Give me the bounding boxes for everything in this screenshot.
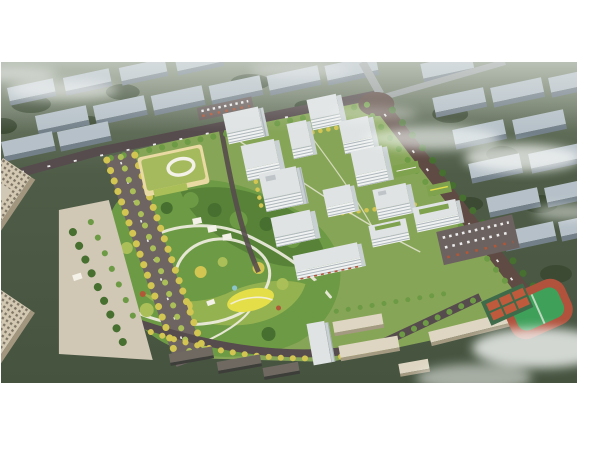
residential-tower (350, 144, 394, 187)
flower-bed (140, 291, 146, 297)
tree (218, 257, 228, 267)
cloud (251, 62, 351, 78)
tree (208, 203, 222, 217)
tree (140, 303, 154, 317)
tree (277, 278, 289, 290)
tree (310, 280, 326, 296)
tree (288, 305, 306, 323)
cloud (364, 126, 500, 150)
aerial-rendering (1, 62, 577, 383)
tree (262, 327, 276, 341)
tree (195, 266, 207, 278)
pond (232, 285, 237, 290)
cloud (327, 106, 417, 122)
cloud (464, 144, 577, 172)
tree (161, 202, 173, 214)
page-background (0, 0, 600, 450)
rendering-canvas (1, 62, 577, 383)
cloud (8, 80, 118, 100)
flower-bed (276, 306, 281, 311)
tree (183, 192, 199, 208)
